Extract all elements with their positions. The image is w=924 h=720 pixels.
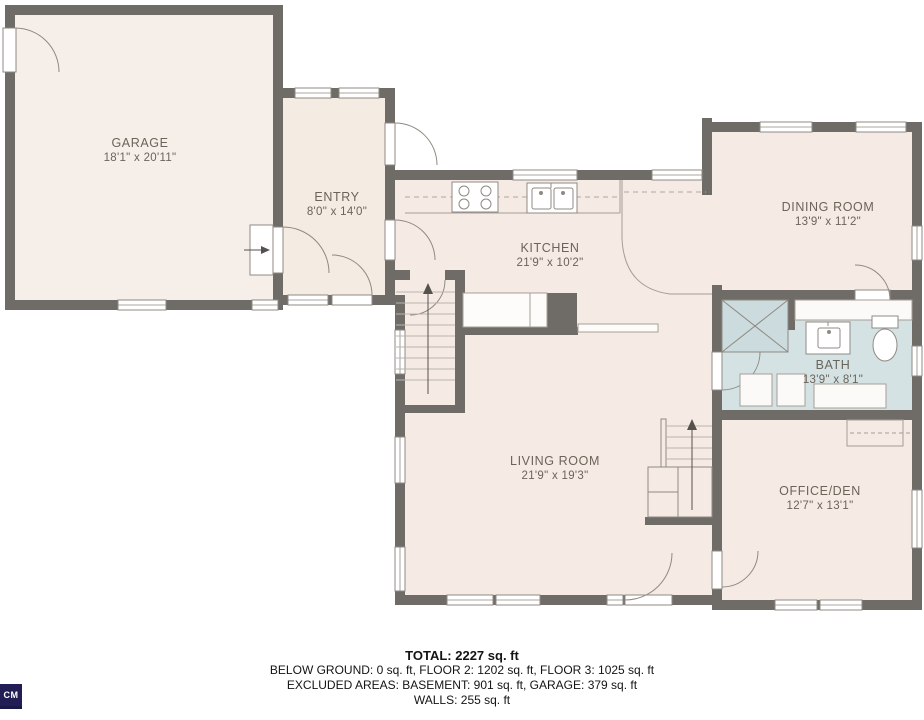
kitchen-living-floor: [395, 178, 712, 598]
entry-back-door-leaf: [385, 123, 395, 165]
dining-floor: [712, 132, 912, 290]
entry-back-door-arc: [395, 123, 437, 165]
vanity-sink-icon: [806, 322, 850, 354]
office-door-leaf: [712, 551, 722, 589]
area-summary: TOTAL: 2227 sq. ft BELOW GROUND: 0 sq. f…: [0, 648, 924, 708]
floorplan-page: GARAGE 18'1" x 20'11" ENTRY 8'0" x 14'0"…: [0, 0, 924, 720]
floorplan-drawing: [0, 0, 924, 720]
garage-floor: [10, 10, 278, 305]
entry-front-door-leaf: [332, 295, 372, 305]
floor-areas-text: BELOW GROUND: 0 sq. ft, FLOOR 2: 1202 sq…: [0, 663, 924, 678]
entry-kitchen-door-leaf: [385, 220, 395, 260]
stove-icon: [452, 182, 498, 212]
sink-icon: [527, 183, 577, 213]
watermark-logo: CM: [0, 684, 22, 709]
total-area-text: TOTAL: 2227 sq. ft: [0, 648, 924, 663]
garage-entry-door-leaf: [273, 227, 283, 273]
toilet-icon: [872, 316, 898, 361]
garage-door-leaf: [3, 28, 16, 72]
excluded-areas-text: EXCLUDED AREAS: BASEMENT: 901 sq. ft, GA…: [0, 678, 924, 693]
peninsula-appliance: [547, 293, 577, 327]
walls-area-text: WALLS: 255 sq. ft: [0, 693, 924, 708]
entry-floor: [283, 93, 385, 300]
bath-door-leaf: [712, 352, 722, 390]
dining-door-leaf: [855, 290, 890, 300]
shower-icon: [722, 300, 788, 352]
